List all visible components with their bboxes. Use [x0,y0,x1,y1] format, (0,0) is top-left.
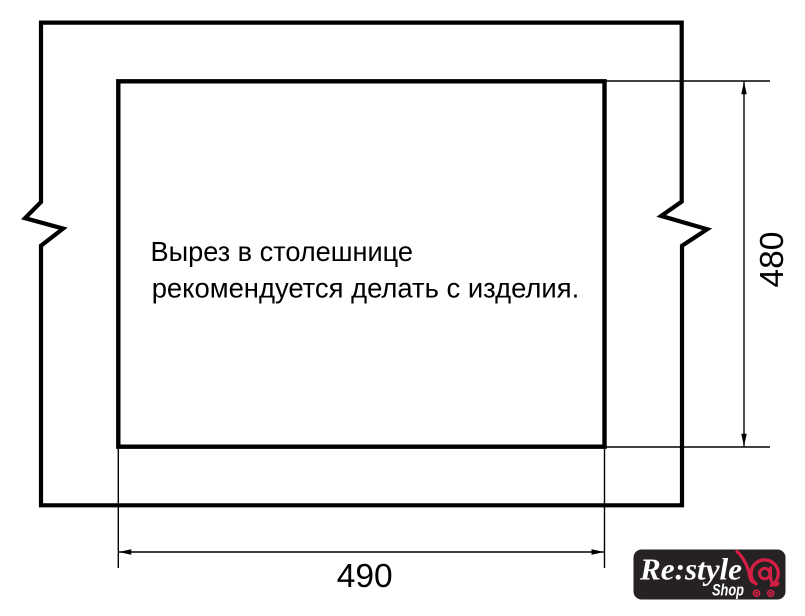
svg-text:Shop: Shop [712,582,744,600]
svg-text:Вырез в столешнице: Вырез в столешнице [151,235,414,267]
svg-text:490: 490 [337,558,393,595]
svg-text:рекомендуется делать с изделия: рекомендуется делать с изделия. [152,271,580,303]
svg-text:480: 480 [754,232,791,288]
